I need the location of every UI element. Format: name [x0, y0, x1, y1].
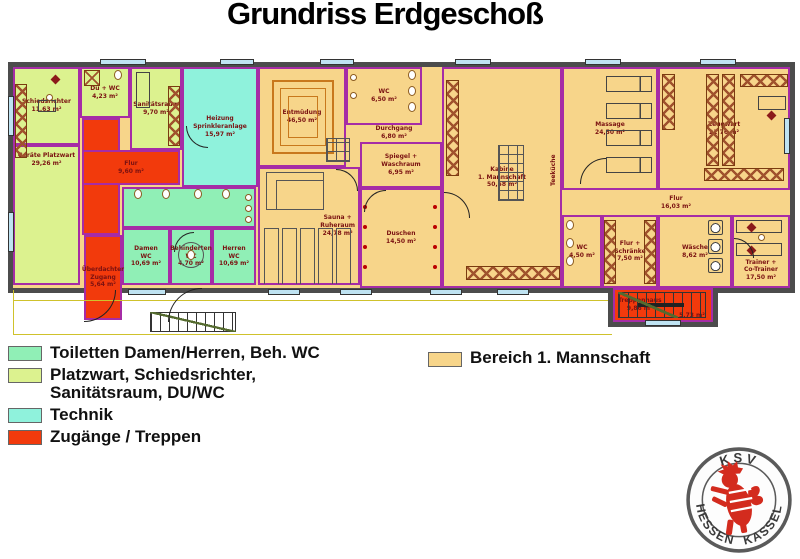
window	[784, 118, 790, 154]
toilet-icon	[194, 189, 202, 199]
desk-icon	[736, 220, 782, 233]
legend-swatch-team	[428, 352, 462, 367]
legend-swatch-platzwart	[8, 368, 42, 383]
sauna-bench-icon	[276, 180, 324, 210]
legend-label: Technik	[50, 406, 113, 425]
shower-head-icon	[363, 265, 367, 269]
stool-icon	[46, 94, 53, 101]
door-swing-icon	[336, 169, 358, 191]
window	[128, 289, 166, 295]
massage-table-icon	[606, 76, 652, 92]
chair-icon	[51, 75, 61, 85]
massage-table-icon	[606, 157, 652, 173]
wardrobe-icon	[15, 84, 27, 158]
shelf-icon	[740, 74, 788, 87]
locker-icon	[644, 220, 656, 284]
club-logo: KSV HESSEN KASSEL	[683, 444, 795, 556]
pool-steps-icon	[326, 138, 350, 162]
rest-stall-icon	[318, 228, 333, 284]
window	[700, 59, 736, 65]
legend-item-team: Bereich 1. Mannschaft	[428, 349, 650, 368]
toilet-icon	[114, 70, 122, 80]
window	[430, 289, 462, 295]
legend-label: Toiletten Damen/Herren, Beh. WC	[50, 344, 320, 363]
toilet-icon	[566, 238, 574, 248]
window	[585, 59, 621, 65]
toilet-icon	[222, 189, 230, 199]
rest-stall-icon	[282, 228, 297, 284]
window	[8, 96, 14, 136]
desk-icon	[38, 100, 56, 112]
shower-head-icon	[363, 245, 367, 249]
toilet-icon	[408, 70, 416, 80]
urinal-icon	[245, 194, 252, 201]
wardrobe-icon	[168, 86, 180, 146]
rest-stall-icon	[264, 228, 279, 284]
rest-stall-icon	[336, 228, 351, 284]
rest-stall-icon	[300, 228, 315, 284]
window	[100, 59, 146, 65]
decoration-layer	[0, 0, 800, 559]
window	[8, 212, 14, 252]
boundary-line	[13, 334, 612, 335]
locker-icon	[446, 80, 459, 176]
window	[220, 59, 254, 65]
shelf-icon	[706, 74, 719, 166]
toilet-icon	[408, 86, 416, 96]
shower-head-icon	[433, 245, 437, 249]
window	[340, 289, 372, 295]
kitchen-unit-icon	[498, 145, 524, 201]
window	[268, 289, 300, 295]
toilet-icon	[566, 220, 574, 230]
boundary-line	[13, 290, 14, 334]
window	[645, 320, 681, 326]
legend: Toiletten Damen/Herren, Beh. WCPlatzwart…	[8, 344, 320, 446]
locker-icon	[466, 266, 560, 280]
legend-label: Zugänge / Treppen	[50, 428, 201, 447]
shower-head-icon	[433, 205, 437, 209]
legend-item-3: Zugänge / Treppen	[8, 428, 320, 447]
toilet-icon	[162, 189, 170, 199]
bed-icon	[136, 72, 150, 108]
urinal-icon	[350, 74, 357, 81]
legend-item-0: Toiletten Damen/Herren, Beh. WC	[8, 344, 320, 363]
urinal-icon	[245, 205, 252, 212]
door-swing-icon	[444, 192, 470, 218]
massage-table-icon	[606, 103, 652, 119]
washing-machine-icon	[708, 220, 723, 235]
staircase-arrow	[618, 292, 678, 318]
window	[497, 289, 529, 295]
shower-head-icon	[363, 225, 367, 229]
shower-head-icon	[433, 265, 437, 269]
desk-icon	[758, 96, 786, 110]
chair-icon	[767, 111, 777, 121]
door-swing-icon	[168, 288, 202, 322]
door-swing-icon	[364, 190, 386, 212]
ksv-hessen-kassel-badge: KSV HESSEN KASSEL	[683, 444, 795, 556]
legend-swatch-technik	[8, 408, 42, 423]
legend-label: Platzwart, Schiedsrichter, Sanitätsraum,…	[50, 366, 256, 403]
legend-label-team: Bereich 1. Mannschaft	[470, 349, 650, 368]
window	[455, 59, 491, 65]
door-swing-icon	[84, 290, 116, 322]
shelf-icon	[662, 74, 675, 130]
legend-swatch-toilets	[8, 346, 42, 361]
toilet-icon	[408, 102, 416, 112]
shelf-icon	[722, 74, 735, 166]
legend-item-1: Platzwart, Schiedsrichter, Sanitätsraum,…	[8, 366, 320, 403]
washing-machine-icon	[708, 239, 723, 254]
washing-machine-icon	[708, 258, 723, 273]
toilet-icon	[134, 189, 142, 199]
pool-icon	[288, 96, 318, 138]
floorplan-page: Grundriss Erdgeschoß Schiedsrichter 11,6…	[0, 0, 800, 559]
window	[320, 59, 354, 65]
shower-tray-icon	[84, 70, 100, 86]
urinal-icon	[245, 216, 252, 223]
urinal-icon	[350, 92, 357, 99]
door-swing-icon	[734, 238, 754, 258]
door-swing-icon	[186, 126, 208, 148]
stool-icon	[758, 234, 765, 241]
legend-swatch-access	[8, 430, 42, 445]
shower-head-icon	[433, 225, 437, 229]
door-swing-icon	[580, 158, 606, 184]
shelf-icon	[704, 168, 784, 181]
legend-item-2: Technik	[8, 406, 320, 425]
toilet-icon	[566, 256, 574, 266]
massage-table-icon	[606, 130, 652, 146]
door-swing-icon	[174, 232, 194, 252]
locker-icon	[604, 220, 616, 284]
